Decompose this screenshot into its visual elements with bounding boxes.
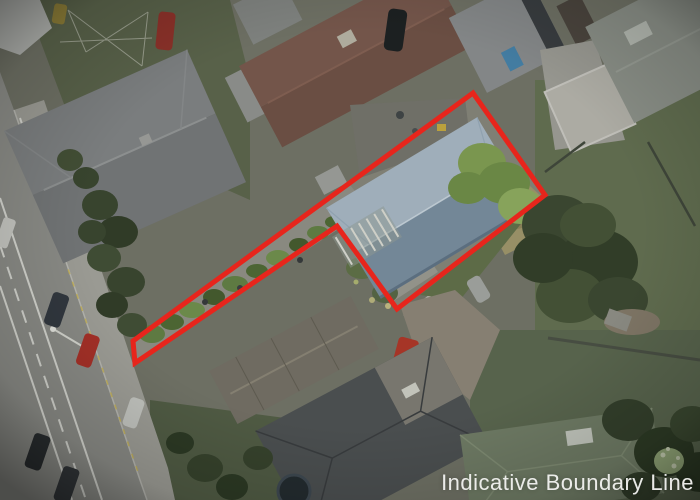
vignette [0, 0, 700, 500]
boundary-caption: Indicative Boundary Line [441, 470, 694, 496]
aerial-scene [0, 0, 700, 500]
aerial-photo: Indicative Boundary Line [0, 0, 700, 500]
